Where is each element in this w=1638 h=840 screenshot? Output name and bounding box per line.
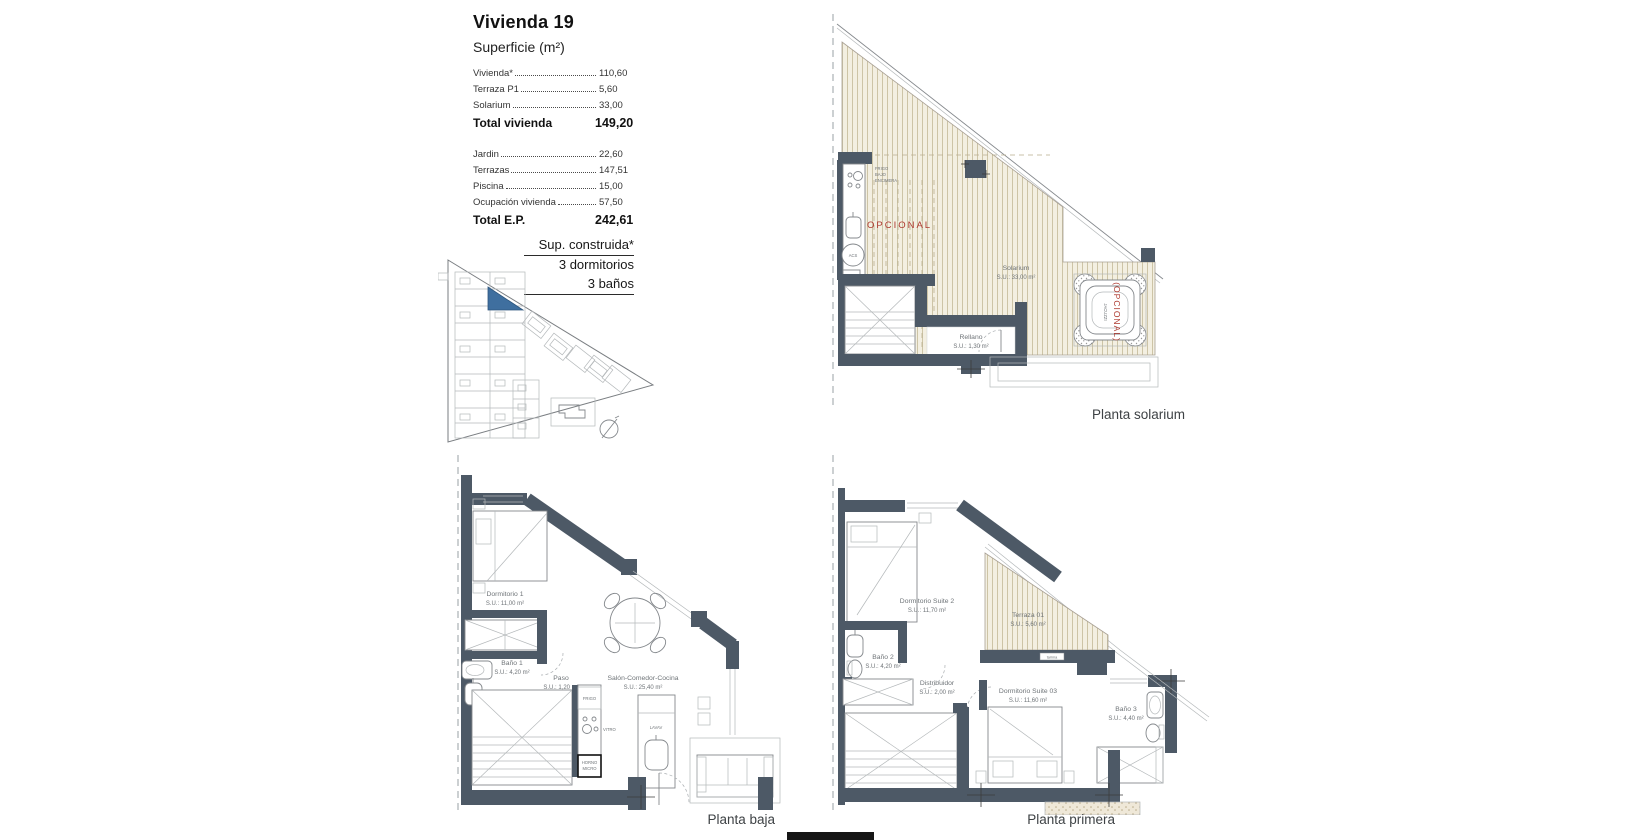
- bano2-area: S.U.: 4,20 m²: [865, 664, 900, 670]
- row-label: Terrazas: [473, 165, 509, 176]
- caption-planta-solarium: Planta solarium: [1040, 407, 1185, 422]
- total-value: 242,61: [595, 213, 643, 227]
- opcional-label: OPCIONAL: [867, 220, 932, 231]
- bano1-area: S.U.: 4,20 m²: [494, 670, 529, 676]
- suite03-name: Dormitorio Suite 03: [999, 688, 1057, 695]
- distribuidor-area: S.U.: 2,00 m²: [919, 690, 954, 696]
- tarima-label: tarima: [1047, 656, 1058, 660]
- suite2-area: S.U.: 11,70 m²: [908, 608, 946, 614]
- chimney-block: [961, 160, 990, 178]
- paso-name: Paso: [553, 675, 569, 682]
- bano2-name: Baño 2: [872, 654, 894, 661]
- bed: [473, 499, 547, 593]
- surface-subtitle: Superficie (m²): [473, 39, 673, 55]
- total-label: Total vivienda: [473, 116, 552, 130]
- dotted-leader: [558, 204, 596, 205]
- salon-area: S.U.: 25,40 m²: [624, 685, 663, 691]
- dotted-leader: [511, 172, 596, 173]
- table-row: Solarium 33,00: [473, 95, 643, 111]
- caption-planta-baja: Planta baja: [690, 812, 775, 827]
- bed: [976, 707, 1074, 783]
- table-row: Ocupación vivienda 57,50: [473, 192, 643, 208]
- bed: [847, 513, 931, 622]
- north-arrow-icon: [600, 416, 619, 438]
- table-row: Terrazas 147,51: [473, 160, 643, 176]
- dorm1-area: S.U.: 11,00 m²: [486, 601, 524, 607]
- total-vivienda-row: Total vivienda 149,20: [473, 111, 643, 130]
- site-plan: [438, 252, 658, 447]
- kitchen-note: BAJO: [875, 172, 887, 177]
- shower: [1097, 747, 1163, 783]
- acs-label: ACS: [849, 253, 858, 258]
- total-ep-row: Total E.P. 242,61: [473, 208, 643, 227]
- jacuzzi-opcional-label: (OPCIONAL): [1112, 282, 1122, 342]
- frigo-label: FRIGO: [583, 696, 597, 701]
- highlighted-unit: [488, 287, 523, 310]
- solarium-name: Solarium: [1003, 265, 1030, 272]
- jacuzzi-label: JACUZZI: [1103, 303, 1108, 320]
- row-label: Vivienda*: [473, 68, 513, 79]
- floorplan-planta-primera: Terraza 01 S.U.: 5,60 m² tarima Dormitor…: [795, 455, 1210, 815]
- total-label: Total E.P.: [473, 213, 525, 227]
- rellano-room: [927, 327, 1015, 357]
- wardrobe: [465, 620, 545, 650]
- table-row: Terraza P1 5,60: [473, 79, 643, 95]
- floorplan-solarium: ACS FRIGO BAJO ENCIMERA OPCIONAL Rellano…: [795, 12, 1195, 412]
- kitchen-note: FRIGO: [875, 166, 889, 171]
- suite2-name: Dormitorio Suite 2: [900, 598, 955, 605]
- dotted-leader: [501, 156, 596, 157]
- row-value: 147,51: [599, 165, 643, 176]
- row-label: Terraza P1: [473, 84, 519, 95]
- bano3-name: Baño 3: [1115, 706, 1137, 713]
- horno-label: MICRO: [583, 766, 598, 771]
- kitchen-note: ENCIMERA: [875, 178, 897, 183]
- terraza-area: S.U.: 5,60 m²: [1010, 622, 1045, 628]
- row-label: Solarium: [473, 100, 511, 111]
- table-row: Jardin 22,60: [473, 144, 643, 160]
- terraza-name: Terraza 01: [1012, 612, 1044, 619]
- row-label: Piscina: [473, 181, 504, 192]
- bathtub: [1147, 692, 1163, 718]
- rellano-area: S.U.: 1,30 m²: [953, 344, 988, 350]
- toilet: [1146, 724, 1164, 742]
- dotted-leader: [506, 188, 596, 189]
- caption-planta-primera: Planta primera: [1000, 812, 1115, 827]
- row-value: 110,60: [599, 68, 643, 79]
- rellano-name: Rellano: [959, 334, 982, 341]
- row-label: Ocupación vivienda: [473, 197, 556, 208]
- toilet: [847, 660, 862, 678]
- vitro-label: VITRO: [603, 727, 617, 732]
- area-table: Vivienda* 110,60 Terraza P1 5,60 Solariu…: [473, 63, 643, 227]
- kitchen-counter: FRIGO VITRO HORNO MICRO: [578, 685, 617, 777]
- bano3-area: S.U.: 4,40 m²: [1108, 716, 1143, 722]
- stairs: [472, 690, 572, 785]
- salon-name: Salón-Comedor-Cocina: [607, 675, 678, 682]
- area-summary: Vivienda 19 Superficie (m²) Vivienda* 11…: [473, 12, 673, 227]
- page-title: Vivienda 19: [473, 12, 673, 33]
- dotted-leader: [521, 91, 596, 92]
- lavav-label: LAVAV: [650, 725, 663, 730]
- distribuidor-name: Distribuidor: [920, 680, 955, 687]
- scale-bar: [787, 832, 874, 840]
- solarium-area: S.U.: 33,00 m²: [997, 275, 1036, 281]
- horno-label: HORNO: [582, 760, 598, 765]
- chimney-block: [1141, 248, 1155, 262]
- row-value: 57,50: [599, 197, 643, 208]
- table-row: Vivienda* 110,60: [473, 63, 643, 79]
- row-value: 33,00: [599, 100, 643, 111]
- table-row: Piscina 15,00: [473, 176, 643, 192]
- bano1-name: Baño 1: [501, 660, 523, 667]
- dorm1-name: Dormitorio 1: [486, 591, 523, 598]
- total-value: 149,20: [595, 116, 643, 130]
- shower: [843, 679, 913, 705]
- jacuzzi: JACUZZI (OPCIONAL): [1074, 274, 1146, 346]
- row-value: 15,00: [599, 181, 643, 192]
- sink: [847, 630, 863, 657]
- floorplan-planta-baja: Dormitorio 1 S.U.: 11,00 m² Baño 1 S.U.:…: [435, 455, 785, 815]
- row-value: 5,60: [599, 84, 643, 95]
- bathtub: [462, 661, 492, 679]
- row-label: Jardin: [473, 149, 499, 160]
- dining-table: [601, 590, 668, 655]
- plan-sheet: { "header": { "title": "Vivienda 19", "s…: [0, 0, 1638, 840]
- dotted-leader: [515, 75, 596, 76]
- suite03-area: S.U.: 11,60 m²: [1009, 698, 1047, 704]
- dotted-leader: [513, 107, 597, 108]
- row-value: 22,60: [599, 149, 643, 160]
- stairs: [845, 713, 957, 790]
